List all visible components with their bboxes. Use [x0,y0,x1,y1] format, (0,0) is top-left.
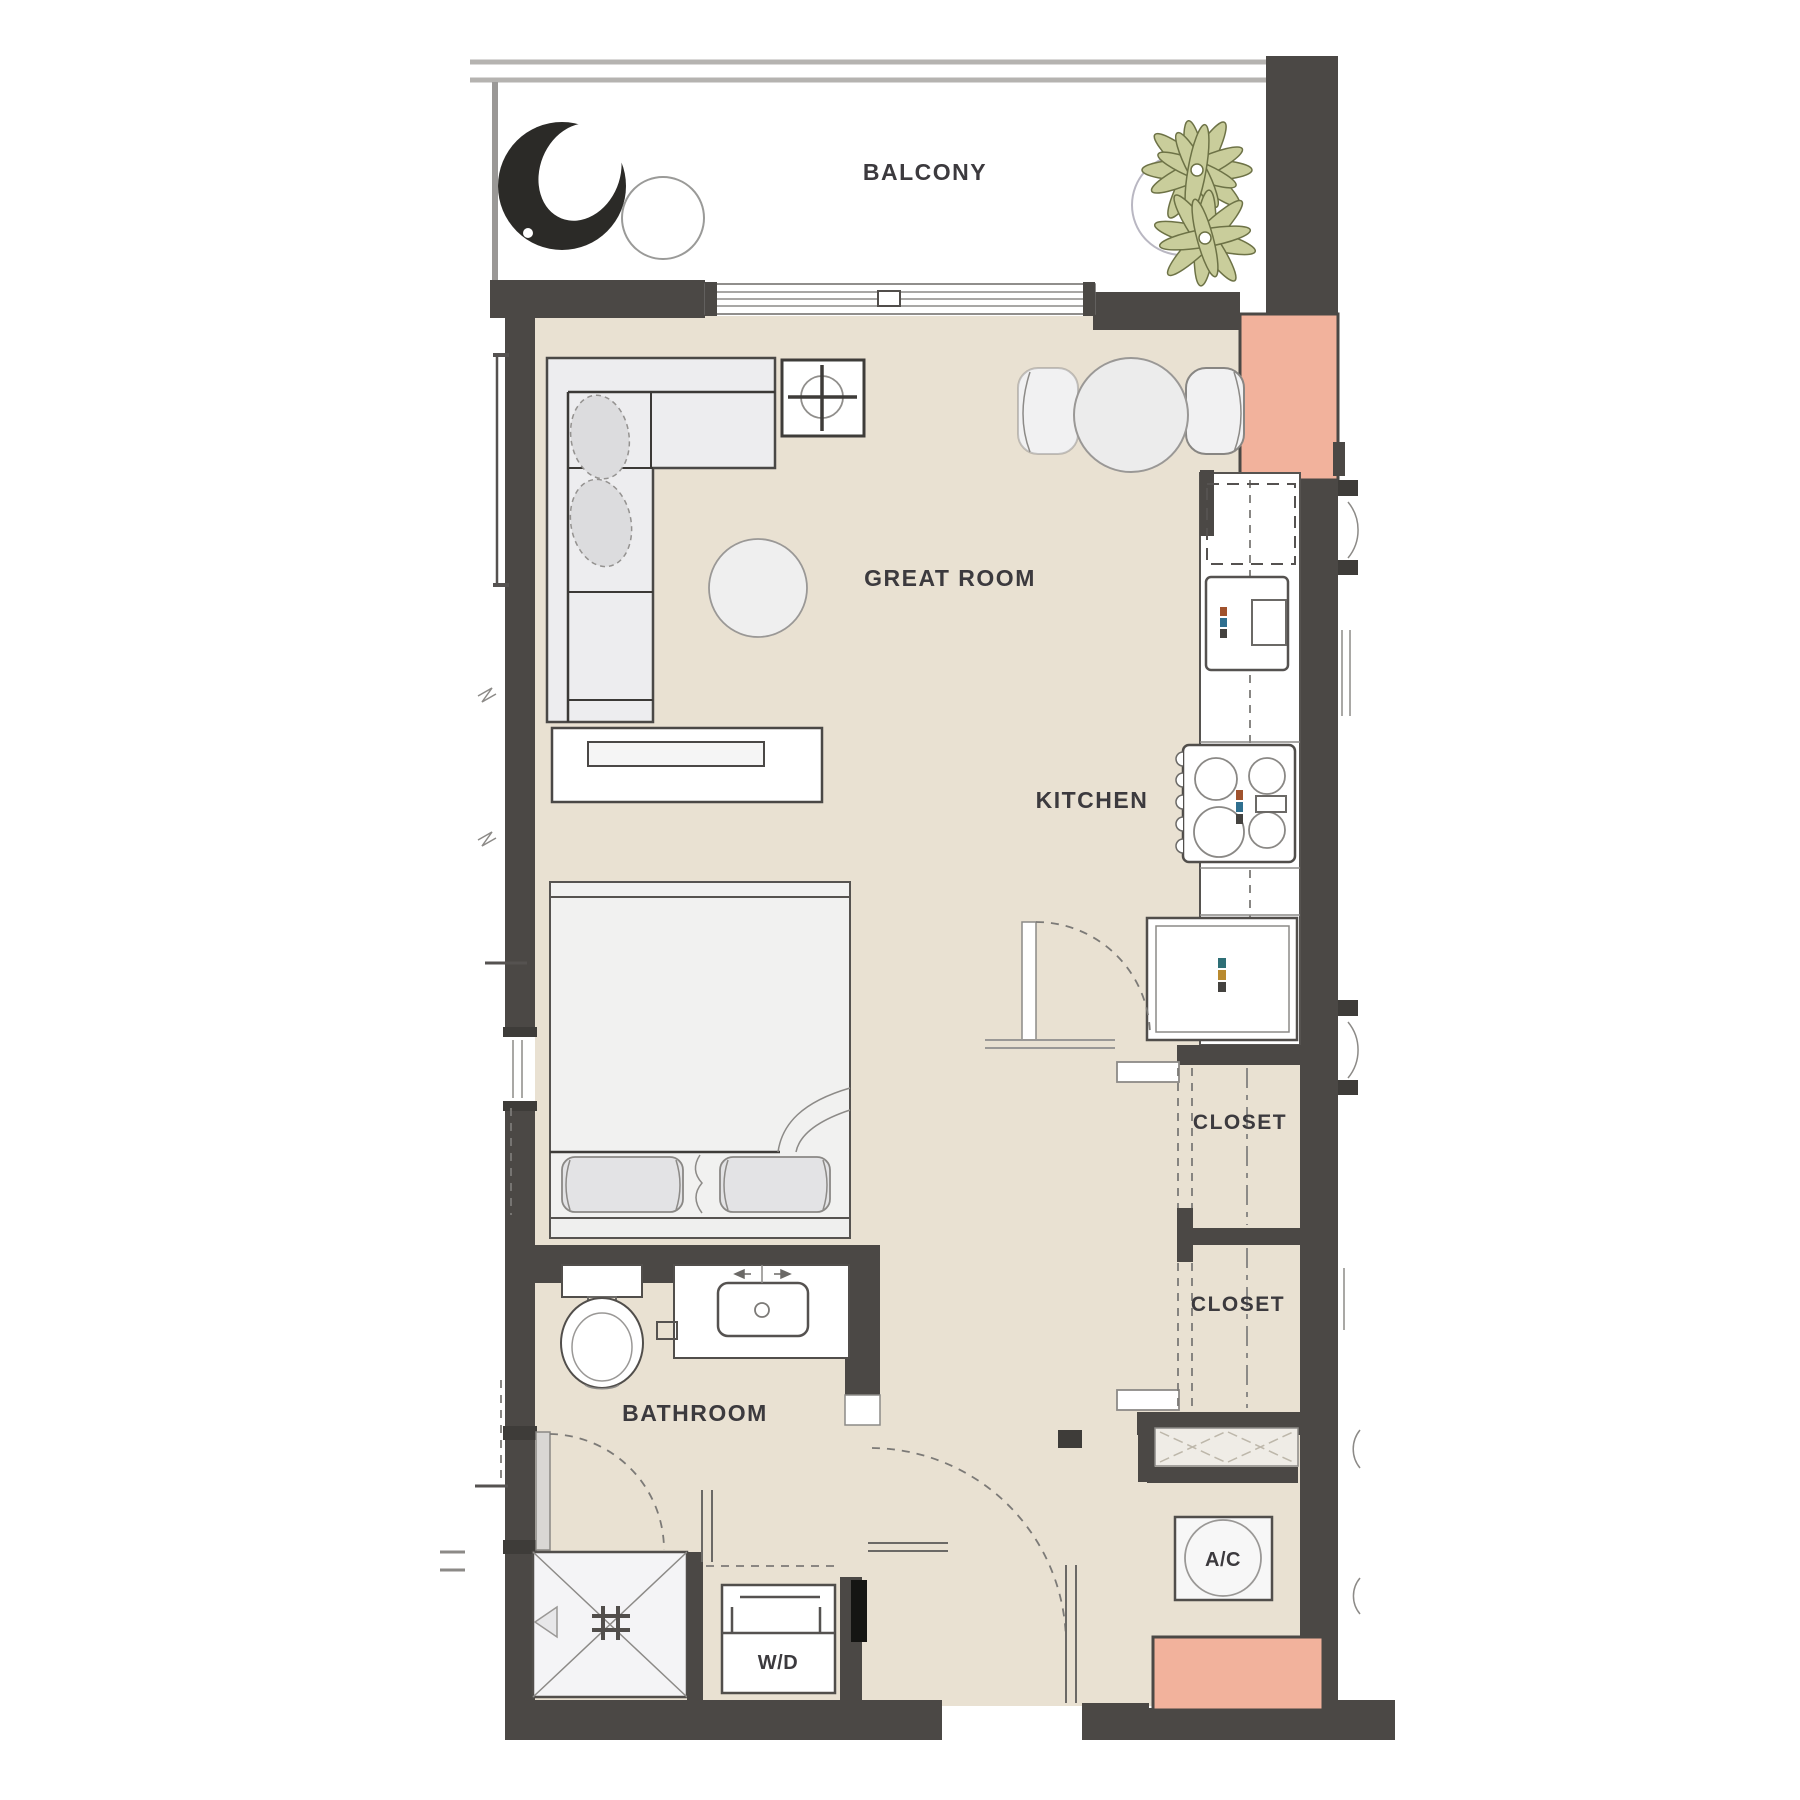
media-console-icon [552,728,822,802]
wall-oven-icon [1206,577,1288,670]
bed-icon [550,882,850,1238]
sliding-door-icon [705,282,1095,316]
wall-top-right [1093,292,1240,330]
entry-shelf-icon [1155,1428,1298,1466]
balcony-side-table-icon [622,177,704,259]
closet-return-bottom [1117,1390,1179,1410]
exterior-marks [1338,480,1395,1738]
closet-upper-label: CLOSET [1193,1111,1287,1134]
balcony-right-wall [1266,56,1338,316]
column-pink-top [1240,314,1338,480]
closet-return-top [1117,1062,1179,1082]
ac-label: A/C [1205,1549,1241,1571]
dining-table-icon [1074,358,1188,472]
end-table-icon [782,360,864,436]
wd-label: W/D [758,1652,798,1674]
wall-bottom-stub [1082,1703,1149,1740]
toilet-icon [561,1265,643,1389]
balcony-label: BALCONY [863,159,987,185]
dining-set [1018,358,1244,472]
headboard [550,1218,850,1238]
closet-lower-label: CLOSET [1191,1293,1285,1316]
door-leaf-dark [851,1580,867,1642]
dining-chair-icon [1186,368,1244,454]
range-icon [1176,745,1295,862]
great-room-label: GREAT ROOM [864,565,1036,591]
dining-chair-icon [1018,368,1078,454]
floor-plan-screenshot: BALCONY [0,0,1800,1800]
closet-divider-wall [1193,1228,1302,1245]
balcony: BALCONY [470,56,1338,316]
ottoman-icon [709,539,807,637]
shower-wd-divider [687,1552,703,1702]
bathroom-right-wall [845,1245,880,1395]
wall-bottom-left [505,1700,942,1740]
washer-dryer-icon: W/D [722,1585,835,1693]
column-pink-bottom [1153,1637,1323,1710]
wall-right [1300,480,1338,1740]
balcony-left-wall-line [492,82,498,282]
shower-icon [533,1552,687,1697]
vanity-sink-icon [657,1265,849,1358]
bed-pillow-icon [720,1157,830,1212]
egg-chair-icon [498,111,636,250]
bed-pillow-icon [562,1157,683,1212]
bathroom-label: BATHROOM [622,1400,768,1426]
ac-unit-icon: A/C [1175,1517,1272,1600]
kitchen-label: KITCHEN [1036,787,1149,813]
potted-plant-icon [1132,117,1258,287]
refrigerator-icon [1147,918,1297,1040]
floor-plan-canvas: BALCONY [0,0,1800,1800]
wall-left [505,280,535,1740]
